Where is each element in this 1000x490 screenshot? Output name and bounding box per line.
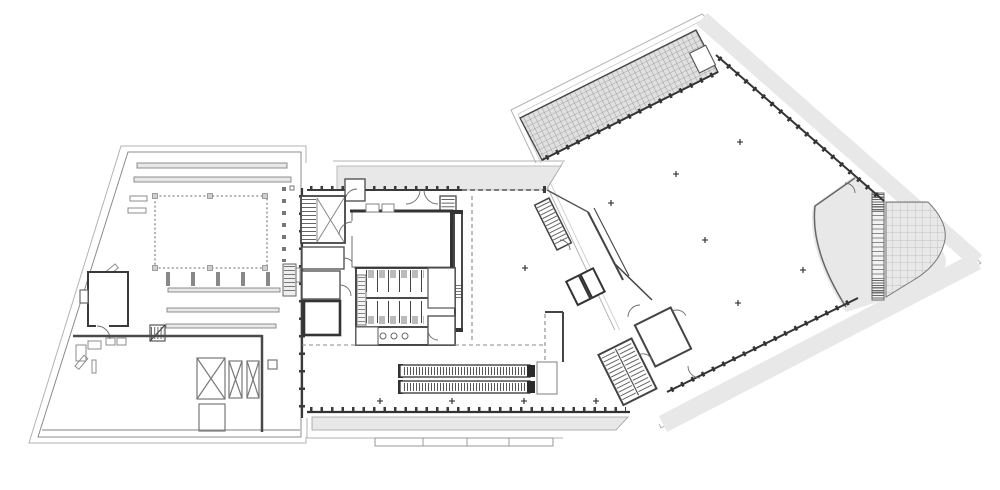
skylight-x-boxes: [197, 358, 277, 431]
plant-room: [88, 272, 128, 326]
toilet-block: [356, 268, 455, 345]
lobby-room: [428, 268, 455, 308]
roof-light-bar: [134, 177, 291, 182]
facade-corner-tick: [543, 186, 546, 193]
door-gap: [350, 221, 354, 236]
tick-square: [290, 186, 294, 190]
louvre-strip: [872, 193, 884, 300]
floor-plan-canvas: [0, 0, 1000, 490]
lobby-room: [428, 316, 455, 345]
roof-light-bar: [167, 308, 279, 312]
courtyard-corner-nodes: [153, 194, 268, 271]
facade-vestibule: [345, 179, 365, 201]
stair-block: [301, 196, 345, 243]
bottom-canopy-band: [312, 417, 628, 430]
roof-light-bar: [137, 163, 287, 168]
dashed-courtyard-opening: [155, 196, 267, 268]
west-wing-roof-deck: [29, 146, 306, 443]
mini-stair-icon: [150, 325, 165, 341]
roof-light-bar: [166, 324, 276, 328]
roof-light-bar: [168, 288, 280, 292]
cleaner-room: [356, 327, 378, 345]
canopy-sub-boxes: [375, 438, 553, 446]
west-outer-outline: [29, 146, 306, 443]
plant-room-annex: [80, 290, 88, 303]
external-stair: [283, 264, 296, 296]
